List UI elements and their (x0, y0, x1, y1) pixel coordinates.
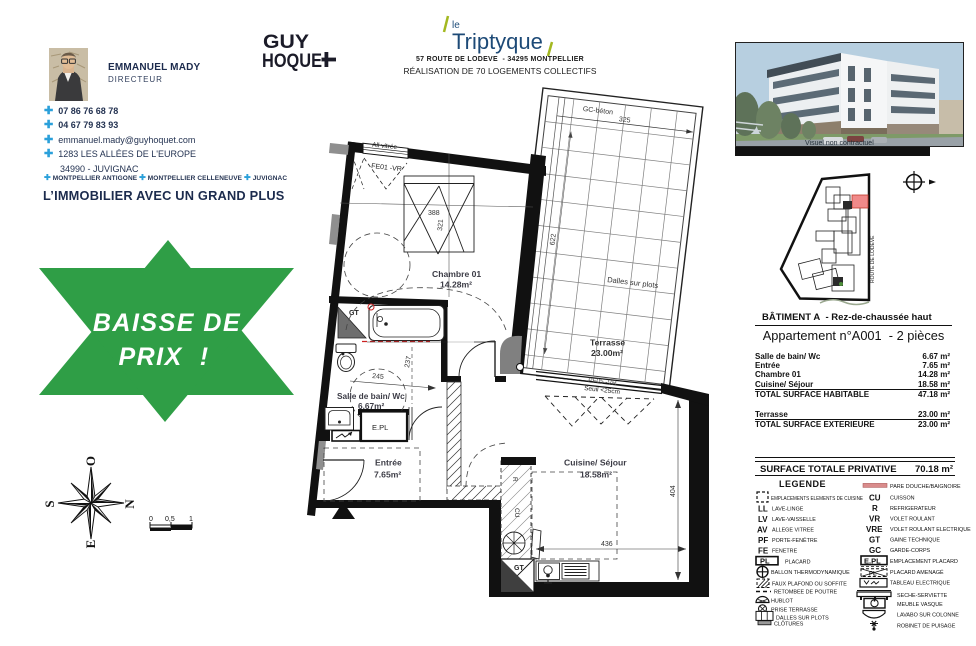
svg-text:BALLON THERMODYNAMIQUE: BALLON THERMODYNAMIQUE (771, 570, 850, 576)
svg-text:BAISSE DE: BAISSE DE (93, 309, 241, 337)
svg-text:REFRIGERATEUR: REFRIGERATEUR (890, 506, 936, 512)
svg-text:18.58m²: 18.58m² (580, 470, 612, 480)
svg-text:PL: PL (869, 571, 877, 577)
svg-text:CLÔTURES: CLÔTURES (774, 621, 804, 628)
svg-text:AV: AV (757, 526, 768, 535)
svg-text:GARDE-CORPS: GARDE-CORPS (890, 548, 931, 554)
svg-text:0,5: 0,5 (165, 516, 175, 523)
svg-text:237: 237 (404, 356, 413, 369)
svg-text:E.PL: E.PL (864, 556, 881, 565)
svg-text:PL: PL (760, 557, 770, 566)
svg-text:LAVABO SUR COLONNE: LAVABO SUR COLONNE (897, 613, 959, 619)
svg-text:436: 436 (601, 541, 613, 548)
svg-text:GT: GT (514, 565, 524, 572)
svg-text:LAVE-VAISSELLE: LAVE-VAISSELLE (772, 517, 816, 523)
svg-text:TABLEAU ELECTRIQUE: TABLEAU ELECTRIQUE (890, 581, 951, 587)
svg-text:PLACARD AMENAGÉ: PLACARD AMENAGÉ (890, 569, 944, 576)
svg-text:LV: LV (758, 515, 768, 524)
svg-text:Chambre 01: Chambre 01 (432, 269, 481, 279)
svg-text:EMPLACEMENTS ELEMENTS DE CUISI: EMPLACEMENTS ELEMENTS DE CUISINE (771, 496, 863, 502)
svg-text:PRISE TERRASSE: PRISE TERRASSE (771, 608, 818, 614)
svg-text:1: 1 (189, 516, 193, 523)
svg-text:FE: FE (758, 547, 769, 556)
svg-text:HOQUE: HOQUE (262, 51, 322, 72)
svg-text:23.00m²: 23.00m² (591, 348, 623, 358)
svg-text:VRE: VRE (866, 525, 883, 534)
svg-text:PRIX !: PRIX ! (118, 343, 209, 371)
svg-text:PLACARD: PLACARD (785, 560, 811, 566)
svg-text:388: 388 (428, 210, 440, 217)
svg-text:Cuisine/ Séjour: Cuisine/ Séjour (564, 458, 627, 468)
svg-text:GC: GC (869, 546, 881, 555)
svg-text:LL: LL (758, 505, 768, 514)
svg-text:CUISSON: CUISSON (890, 496, 915, 502)
svg-text:Entrée: Entrée (375, 458, 402, 468)
svg-text:245: 245 (372, 373, 384, 381)
svg-text:E.PL: E.PL (372, 423, 388, 432)
svg-text:321: 321 (437, 219, 445, 231)
svg-text:ROBINET DE PUISAGE: ROBINET DE PUISAGE (897, 624, 956, 630)
svg-text:404: 404 (670, 485, 677, 497)
svg-text:CU: CU (513, 508, 520, 518)
svg-text:14.28m²: 14.28m² (440, 280, 472, 290)
svg-text:R: R (872, 504, 878, 513)
svg-text:FE01 -VR: FE01 -VR (371, 163, 402, 173)
svg-text:Visuel non contractuel: Visuel non contractuel (805, 140, 874, 147)
svg-text:6.67m²: 6.67m² (358, 401, 385, 411)
svg-text:N: N (122, 499, 137, 509)
svg-text:PF: PF (758, 536, 768, 545)
svg-text:VOLET ROULANT: VOLET ROULANT (890, 517, 936, 523)
svg-text:VOLET ROULANT ELECTRIQUE: VOLET ROULANT ELECTRIQUE (890, 527, 971, 533)
svg-text:RETOMBEE DE POUTRE: RETOMBEE DE POUTRE (774, 590, 838, 596)
svg-text:LAVE-LINGE: LAVE-LINGE (772, 507, 804, 513)
svg-text:SECHE-SERVIETTE: SECHE-SERVIETTE (897, 593, 948, 599)
svg-text:S: S (42, 500, 57, 507)
svg-text:E: E (83, 540, 98, 549)
svg-text:R: R (511, 477, 518, 482)
svg-text:CU: CU (869, 494, 881, 503)
svg-text:PARE DOUCHE/BAIGNOIRE: PARE DOUCHE/BAIGNOIRE (890, 484, 961, 490)
svg-text:Terrasse: Terrasse (590, 338, 625, 348)
svg-text:Salle de bain/ Wc: Salle de bain/ Wc (337, 391, 405, 401)
svg-text:EMPLACEMENT PLACARD: EMPLACEMENT PLACARD (890, 559, 958, 565)
svg-text:FENETRE: FENETRE (772, 549, 798, 555)
svg-text:7.65m²: 7.65m² (374, 470, 401, 480)
svg-text:O: O (83, 456, 98, 466)
svg-text:ALLEGE VITREE: ALLEGE VITREE (772, 528, 814, 534)
svg-text:VR: VR (869, 515, 880, 524)
svg-text:GUY: GUY (263, 32, 309, 53)
svg-text:GT: GT (869, 536, 880, 545)
svg-text:0: 0 (149, 516, 153, 523)
svg-text:GAINE TECHNIQUE: GAINE TECHNIQUE (890, 538, 940, 544)
svg-text:ROUTE DE LODEVE: ROUTE DE LODEVE (870, 235, 876, 283)
svg-text:PORTE-FENÊTRE: PORTE-FENÊTRE (772, 536, 818, 544)
svg-text:622: 622 (549, 233, 557, 246)
svg-text:HUBLOT: HUBLOT (771, 599, 794, 605)
svg-text:MEUBLE VASQUE: MEUBLE VASQUE (897, 602, 943, 608)
svg-text:FAUX PLAFOND OU SOFFITE: FAUX PLAFOND OU SOFFITE (772, 582, 847, 588)
svg-text:Triptyque: Triptyque (452, 29, 543, 54)
